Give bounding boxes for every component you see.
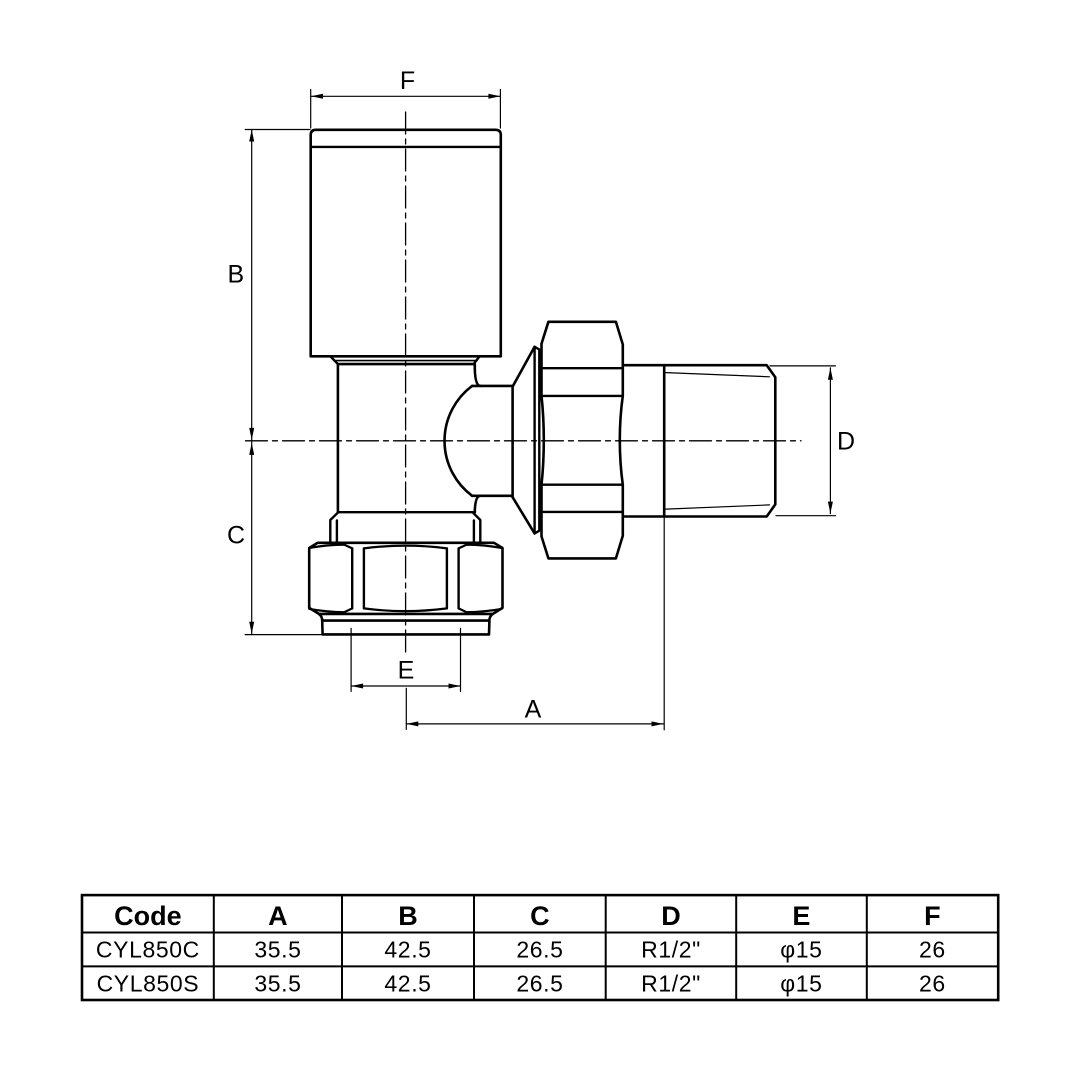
svg-text:42.5: 42.5 (384, 971, 431, 997)
svg-text:B: B (228, 261, 245, 289)
svg-text:B: B (398, 901, 418, 931)
svg-text:35.5: 35.5 (254, 937, 301, 963)
svg-text:Code: Code (114, 901, 182, 931)
svg-text:35.5: 35.5 (254, 971, 301, 997)
svg-text:42.5: 42.5 (384, 937, 431, 963)
svg-text:26: 26 (919, 971, 946, 997)
svg-text:F: F (400, 67, 415, 95)
svg-text:C: C (530, 901, 550, 931)
svg-text:φ15: φ15 (780, 937, 822, 963)
svg-text:R1/2": R1/2" (641, 971, 701, 997)
svg-text:E: E (792, 901, 810, 931)
svg-text:CYL850C: CYL850C (96, 937, 200, 963)
svg-text:26.5: 26.5 (516, 971, 563, 997)
svg-text:A: A (525, 696, 542, 724)
svg-text:CYL850S: CYL850S (97, 971, 200, 997)
svg-text:D: D (837, 428, 855, 456)
svg-text:F: F (924, 901, 941, 931)
svg-text:26.5: 26.5 (516, 937, 563, 963)
svg-text:A: A (268, 901, 288, 931)
svg-text:C: C (227, 522, 245, 550)
svg-text:26: 26 (919, 937, 946, 963)
svg-text:φ15: φ15 (780, 971, 822, 997)
svg-text:D: D (661, 901, 681, 931)
svg-text:E: E (398, 657, 415, 685)
svg-text:R1/2": R1/2" (641, 937, 701, 963)
